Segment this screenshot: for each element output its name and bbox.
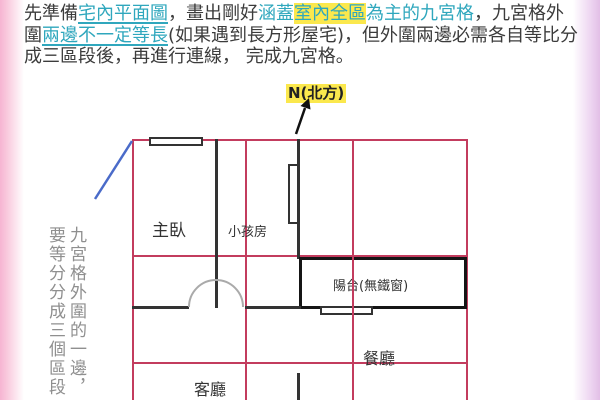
intro-line-1: 先準備宅內平面圖，畫出剛好涵蓋室內全區為主的九宮格，九宮格外 <box>24 3 584 25</box>
balcony-step-symbol <box>320 306 373 315</box>
grid-line-vertical-2 <box>245 139 247 400</box>
room-label-master-bedroom: 主臥 <box>152 216 186 241</box>
wall-living-room <box>297 373 300 400</box>
room-label-kids-room: 小孩房 <box>228 221 267 240</box>
text-segment: 先準備 <box>24 3 78 24</box>
side-note-column-2: 要等分分成三個區段 <box>45 226 65 400</box>
room-label-dining-room: 餐廳 <box>363 345 395 369</box>
text-segment: 室內全區 <box>294 3 366 24</box>
grid-line-horizontal-3 <box>132 362 468 364</box>
wall-hall-right <box>245 306 301 309</box>
grid-line-vertical-left <box>132 139 134 400</box>
grid-line-vertical-3-overlay <box>352 255 354 317</box>
text-segment: 涵蓋 <box>258 3 294 24</box>
text-segment: 宅內平面圖 <box>78 3 168 24</box>
text-segment: 兩邊不一定等長 <box>42 25 168 46</box>
side-note-column-1: 九宮格外圍的一邊， <box>66 226 86 400</box>
intro-line-3: 成三區段後，再進行連線， 完成九宮格。 <box>24 46 584 68</box>
text-segment: ，畫出剛好 <box>168 3 258 24</box>
text-segment: 成三區段後，再進行連線， 完成九宮格。 <box>24 46 354 67</box>
north-arrow-shaft <box>296 108 305 134</box>
door-symbol <box>288 164 299 224</box>
intro-line-2: 圍兩邊不一定等長(如果遇到長方形屋宅)，但外圍兩邊必需各自等比分 <box>24 25 584 47</box>
page: 先準備宅內平面圖，畫出剛好涵蓋室內全區為主的九宮格，九宮格外 圍兩邊不一定等長(… <box>0 0 600 400</box>
room-label-balcony: 陽台(無鐵窗) <box>333 275 408 294</box>
wall-hall-left <box>132 306 189 309</box>
wall-bedroom-divider <box>215 139 218 308</box>
text-segment: 圍 <box>24 25 42 46</box>
window-symbol <box>149 137 203 146</box>
north-label: N(北方) <box>286 84 346 103</box>
text-segment: (如果遇到長方形屋宅)，但外圍兩邊必需各自等比分 <box>168 25 578 46</box>
blue-annotation-line <box>95 141 132 199</box>
text-segment: 為主的九宮格 <box>366 3 474 24</box>
room-label-living-room: 客廳 <box>194 376 226 400</box>
text-segment: ，九宮格外 <box>474 3 564 24</box>
intro-paragraph: 先準備宅內平面圖，畫出剛好涵蓋室內全區為主的九宮格，九宮格外 圍兩邊不一定等長(… <box>24 3 584 68</box>
